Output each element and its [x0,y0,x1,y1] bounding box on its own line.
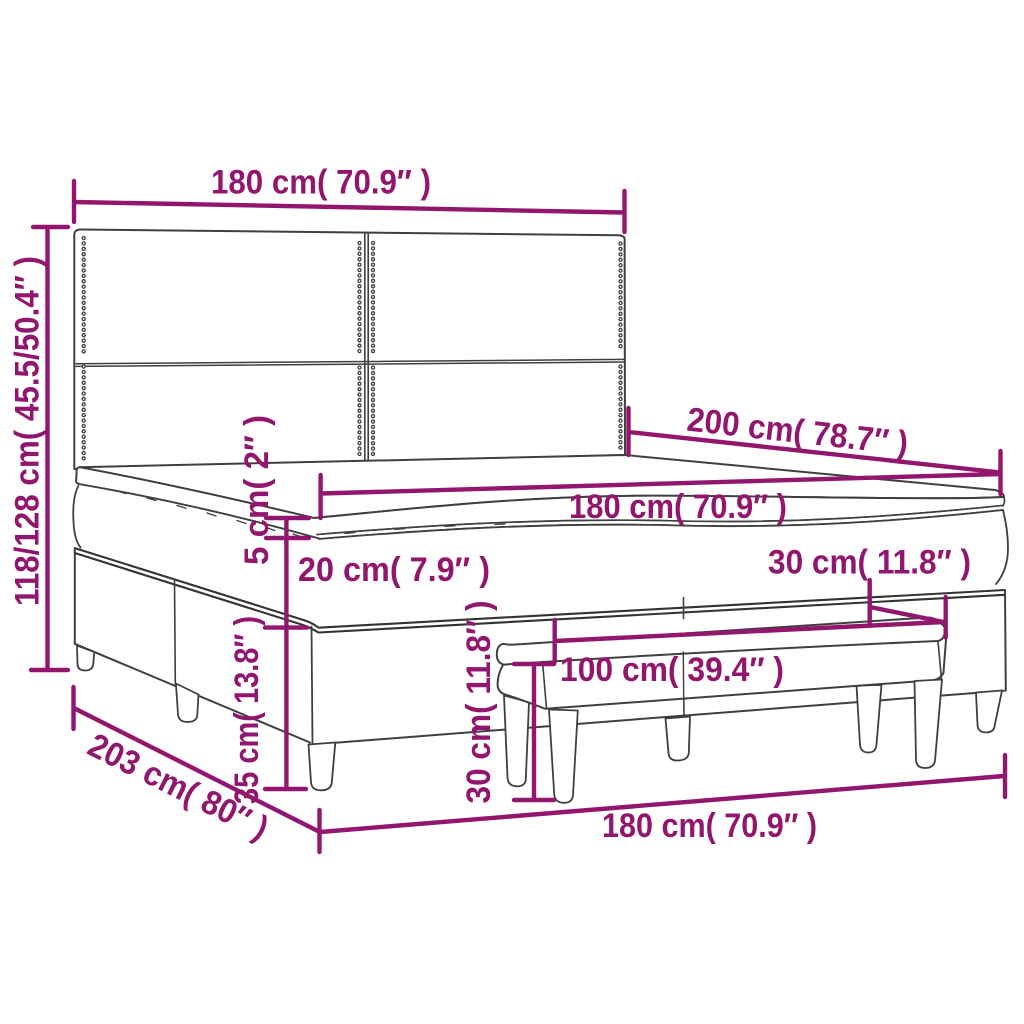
svg-text:100 cm( 39.4″ ): 100 cm( 39.4″ ) [560,651,784,689]
svg-text:180 cm( 70.9″ ): 180 cm( 70.9″ ) [211,164,431,202]
svg-text:5 cm( 2″ ): 5 cm( 2″ ) [238,415,276,565]
svg-text:118/128 cm( 45.5/50.4″ ): 118/128 cm( 45.5/50.4″ ) [9,256,47,606]
svg-text:180 cm( 70.9″ ): 180 cm( 70.9″ ) [602,807,817,845]
svg-text:30 cm( 11.8″ ): 30 cm( 11.8″ ) [768,544,971,582]
svg-text:180 cm( 70.9″ ): 180 cm( 70.9″ ) [569,488,787,526]
svg-text:35 cm( 13.8″ ): 35 cm( 13.8″ ) [228,616,266,804]
svg-text:20 cm( 7.9″ ): 20 cm( 7.9″ ) [298,551,490,589]
svg-text:30 cm( 11.8″ ): 30 cm( 11.8″ ) [460,601,498,804]
